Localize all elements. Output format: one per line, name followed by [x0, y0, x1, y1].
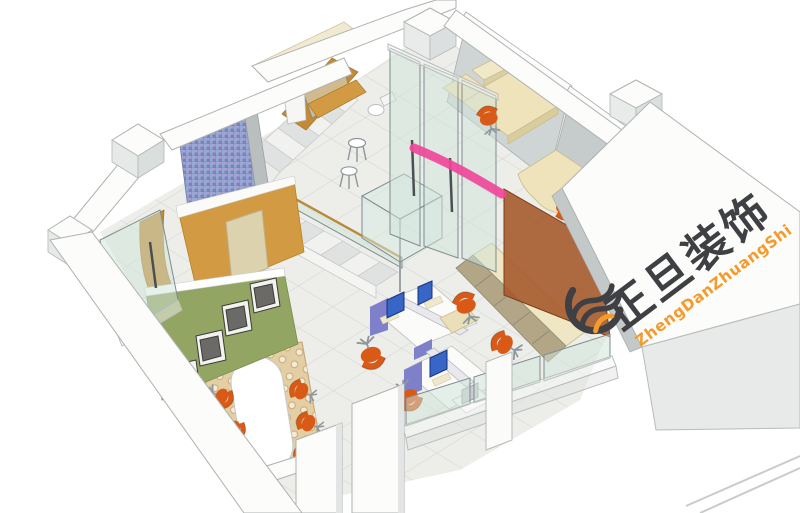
office-3d-rendering: 正旦装饰 ZhengDanZhuangShi [0, 0, 800, 513]
bottom-right-edge-lines [686, 456, 800, 513]
facade-column [486, 352, 512, 450]
office-3d-rendering-canvas: 正旦装饰 ZhengDanZhuangShi [0, 0, 800, 513]
